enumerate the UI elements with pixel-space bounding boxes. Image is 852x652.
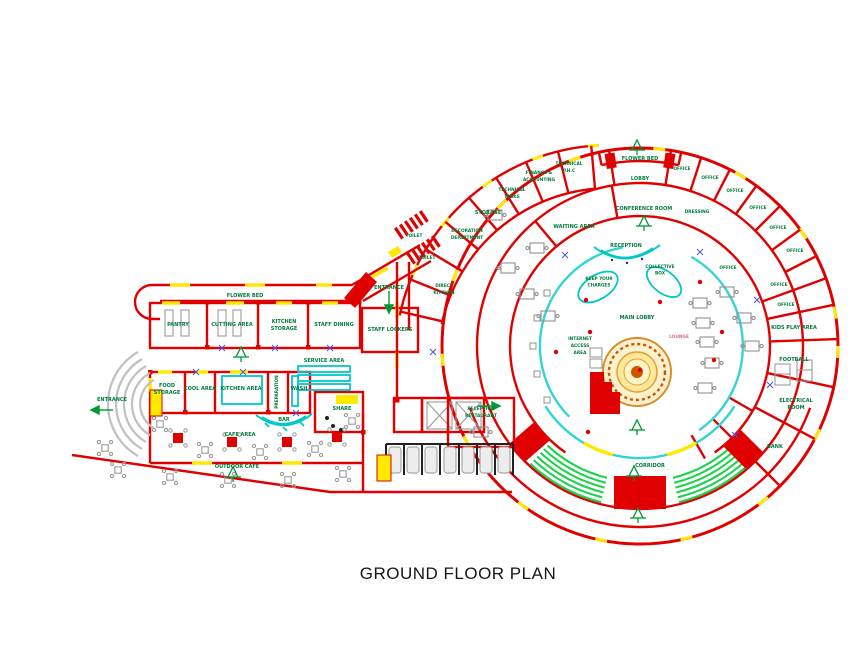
wash-label: WASH [291,386,308,392]
direct-kitchen-label: DIRECT [435,283,453,289]
food-storage-label: FOOD [159,383,175,389]
kids-play-area-label: KIDS PLAY AREA [771,325,817,331]
foosball-tables [775,360,812,385]
reception-restaurant-label: RECEPTION [467,406,495,412]
corridor-inner-glass [546,406,735,458]
keep-your-charges-label: KEEP YOUR [585,276,613,282]
svg-text:ACCESS: ACCESS [571,343,590,349]
svg-text:ACCOUNTING: ACCOUNTING [523,177,555,183]
storage-label: STORAGE [475,210,502,216]
collective-box-label: COLLECTIVE [645,264,674,270]
staff-dining-label: STAFF DINING [314,322,353,328]
decoration-department-label: DECORATION [451,228,483,234]
office-label: OFFICE [701,175,718,181]
entrance-arrow-top [385,291,393,313]
drawing-title: GROUND FLOOR PLAN [360,564,556,583]
flower-bed-end-wall [678,152,681,165]
entrance-steps [108,352,154,456]
flower-bed-end-wall [599,152,602,165]
pantry-label: PANTRY [167,322,189,328]
cafe-area-label: CAFE AREA [224,432,255,438]
corridor-center-block [614,476,666,509]
office-label: OFFICE [749,205,766,211]
kitchen-storage-label: KITCHEN [272,319,297,325]
kiosk [590,348,602,357]
technical-tasks-label: TECHNICAL [498,187,525,193]
office-label: OFFICE [777,302,794,308]
bank-label: BANK [767,444,784,450]
lounge-label: LOUNGE [669,334,689,340]
share-label: SHARE [333,406,353,412]
service-area-label: SERVICE AREA [304,358,345,364]
svg-text:ROOM: ROOM [787,405,804,411]
office-label: OFFICE [786,248,803,254]
football-label: FOOTBALL [779,357,809,363]
outdoor-cafe-label: OUTDOOR CAFE [215,464,260,470]
main-lobby-label: MAIN LOBBY [620,315,655,321]
share-counter [336,395,358,404]
toilet-label: TOILET [406,233,423,239]
cool-area-label: COOL AREA [184,386,216,392]
entrance-top-label: ENTRANCE [374,285,405,291]
parking-stalls [386,444,514,475]
svg-text:AREA: AREA [574,350,588,356]
svg-text:RESTAURANT: RESTAURANT [465,413,497,419]
rotunda-inner-ring-wall [510,216,770,452]
entrance-side-label: ENTRANCE [97,397,128,403]
lobby-label: LOBBY [631,176,650,182]
waiting-area-label: WAITING AREA [553,224,594,230]
finance-accounting-label: FINANCE & [526,170,553,176]
floor-plan-page: FLOWER BED PANTRY CUTTING AREA KITCHEN S… [0,0,852,652]
svg-text:STORAGE: STORAGE [154,390,181,396]
office-label: OFFICE [770,282,787,288]
corridor-label: CORRIDOR [635,463,665,469]
rotunda-structure [371,112,838,544]
office-label: OFFICE [769,225,786,231]
svg-text:DEPARTMENT: DEPARTMENT [451,235,483,241]
preparation-label: PREPARATION [274,375,280,409]
conference-room-label: CONFERENCE ROOM [616,206,673,212]
lounge-furniture [689,287,763,393]
reception-label: RECEPTION [610,243,642,249]
internet-access-label: INTERNET [568,336,592,342]
staff-lockers-label: STAFF LOCKERS [368,327,413,333]
flower-bed-label: FLOWER BED [227,293,264,299]
electrical-room-label: ELECTRICAL [779,398,813,404]
bar-label: BAR [278,417,290,423]
service-pad [377,455,391,481]
toilet-label: TOILET [419,255,436,261]
svg-text:CHARGES: CHARGES [588,283,611,289]
left-wing-structure [72,245,514,492]
rotunda-flower-bed-label: FLOWER BED [622,156,659,162]
kitchen-area-label: KITCHEN AREA [220,386,261,392]
cutting-area-label: CUTTING AREA [211,322,253,328]
svg-text:TASKS: TASKS [504,194,519,200]
svg-text:P.H.C: P.H.C [563,168,575,174]
technical-phc-label: TECHNICAL [555,161,582,167]
office-label: OFFICE [719,265,736,271]
kiosk [590,359,602,368]
cafe-tables [152,413,359,459]
office-label: OFFICE [726,188,743,194]
office-label: OFFICE [673,166,690,172]
floor-plan-drawing: FLOWER BED PANTRY CUTTING AREA KITCHEN S… [0,0,852,652]
dressing-label: DRESSING [685,209,710,215]
svg-text:STORAGE: STORAGE [271,326,298,332]
svg-text:KITCHEN: KITCHEN [433,290,455,296]
entrance-arrow-side [91,406,113,414]
svg-text:BOX: BOX [655,271,666,277]
